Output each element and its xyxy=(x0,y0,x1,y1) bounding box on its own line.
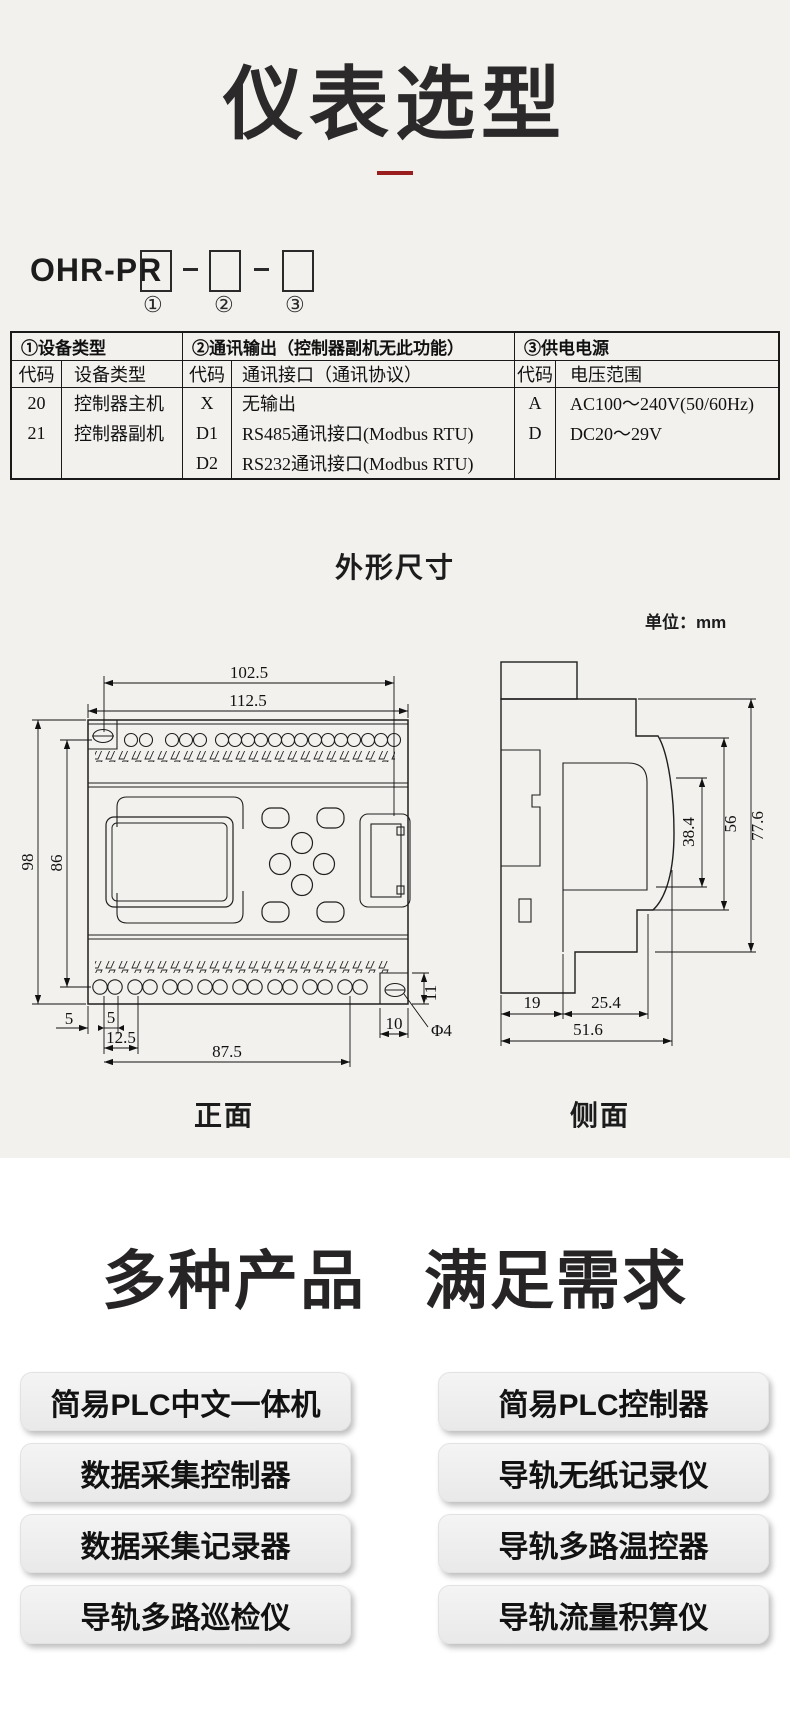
col-header-code-1: 代码 xyxy=(12,361,61,388)
product-button-rail-scanner[interactable]: 导轨多路巡检仪 xyxy=(20,1585,351,1644)
cell-no-output: 无输出 xyxy=(242,388,514,418)
col-header-comm-interface: 通讯接口（通讯协议） xyxy=(231,361,514,388)
section-header-device-type: ①设备类型 xyxy=(12,333,182,360)
cell-code-d2: D2 xyxy=(183,448,231,478)
cell-code-20: 20 xyxy=(12,388,61,418)
dim-front-hole-diameter: Φ4 xyxy=(431,1021,452,1040)
dim-front-height-full: 98 xyxy=(18,854,37,871)
top-gray-section: 仪表选型 OHR-PR ① ② ③ ①设备类型 ②通讯输出（控制器副机无此功能）… xyxy=(0,0,790,1158)
title-underline-dash xyxy=(377,171,413,175)
cell-code-d1: D1 xyxy=(183,418,231,448)
model-code-box-1 xyxy=(140,250,172,292)
dim-front-offset-pair: 12.5 xyxy=(106,1028,136,1047)
product-buttons-right-column: 简易PLC控制器 导轨无纸记录仪 导轨多路温控器 导轨流量积算仪 xyxy=(438,1372,769,1644)
model-code-dash-1 xyxy=(183,268,198,271)
product-button-data-acq-controller[interactable]: 数据采集控制器 xyxy=(20,1443,351,1502)
section-header-comm-output: ②通讯输出（控制器副机无此功能） xyxy=(182,333,514,360)
front-view-label: 正面 xyxy=(184,1094,264,1134)
cell-rs232: RS232通讯接口(Modbus RTU) xyxy=(242,448,514,478)
cell-code-x: X xyxy=(183,388,231,418)
model-position-3: ③ xyxy=(285,292,305,318)
model-position-2: ② xyxy=(214,292,234,318)
cell-voltage-ac: AC100～240V(50/60Hz) xyxy=(570,388,778,418)
cell-code-d: D xyxy=(515,418,555,448)
dim-side-depth-front: 38.4 xyxy=(679,817,698,847)
products-heading-part1: 多种产品 xyxy=(102,1245,366,1317)
product-button-paperless-recorder[interactable]: 导轨无纸记录仪 xyxy=(438,1443,769,1502)
table-body: 20 21 控制器主机 控制器副机 X D1 D2 无输出 RS485通讯接口(… xyxy=(12,388,778,478)
cell-rs485: RS485通讯接口(Modbus RTU) xyxy=(242,418,514,448)
model-code-box-3 xyxy=(282,250,314,292)
dim-front-width-top: 102.5 xyxy=(230,663,268,682)
model-code-dash-2 xyxy=(254,268,269,271)
products-heading-part2: 满足需求 xyxy=(424,1245,688,1317)
section-header-power-supply: ③供电电源 xyxy=(514,333,778,360)
col-header-code-2: 代码 xyxy=(182,361,231,388)
cell-device-master: 控制器主机 xyxy=(74,388,182,418)
col-header-code-3: 代码 xyxy=(514,361,555,388)
model-code-box-2 xyxy=(209,250,241,292)
product-button-data-acq-recorder[interactable]: 数据采集记录器 xyxy=(20,1514,351,1573)
cell-code-a: A xyxy=(515,388,555,418)
right-module xyxy=(360,814,410,907)
dim-side-depth-mid: 56 xyxy=(721,816,740,833)
product-buttons-left-column: 简易PLC中文一体机 数据采集控制器 数据采集记录器 导轨多路巡检仪 xyxy=(20,1372,351,1644)
dim-front-width-bottom: 87.5 xyxy=(212,1042,242,1061)
dim-front-offset-edge: 5 xyxy=(65,1009,74,1028)
dim-front-height-inner: 86 xyxy=(47,855,66,872)
side-view-label: 侧面 xyxy=(560,1094,640,1134)
top-terminal-holes xyxy=(125,734,401,747)
keypad-buttons xyxy=(262,808,344,922)
front-view-drawing xyxy=(88,720,410,1004)
lcd-screen xyxy=(106,817,233,907)
cell-voltage-dc: DC20～29V xyxy=(570,418,778,448)
bottom-terminal-holes xyxy=(93,980,367,994)
cell-device-slave: 控制器副机 xyxy=(74,418,182,448)
dim-front-offset-hole: 5 xyxy=(107,1008,116,1027)
model-selection-table: ①设备类型 ②通讯输出（控制器副机无此功能） ③供电电源 代码 设备类型 代码 … xyxy=(10,331,780,480)
dim-side-base-mid: 25.4 xyxy=(591,993,621,1012)
product-button-plc-allinone[interactable]: 简易PLC中文一体机 xyxy=(20,1372,351,1431)
dim-side-base-full: 51.6 xyxy=(573,1020,603,1039)
col-header-voltage-range: 电压范围 xyxy=(555,361,778,388)
products-heading: 多种产品满足需求 xyxy=(0,1230,790,1322)
dim-front-width-full: 112.5 xyxy=(229,691,267,710)
product-button-flow-totalizer[interactable]: 导轨流量积算仪 xyxy=(438,1585,769,1644)
dim-front-block-height: 11 xyxy=(421,985,440,1001)
dim-front-block-width: 10 xyxy=(386,1014,403,1033)
dim-side-base-left: 19 xyxy=(524,993,541,1012)
product-button-temp-controller[interactable]: 导轨多路温控器 xyxy=(438,1514,769,1573)
dim-side-depth-full: 77.6 xyxy=(748,811,767,841)
col-header-device-type: 设备类型 xyxy=(61,361,182,388)
page-title: 仪表选型 xyxy=(0,40,790,156)
dimension-drawing: 102.5 112.5 98 86 5 5 12.5 87.5 10 11 Φ4 xyxy=(0,540,790,1160)
table-column-header-row: 代码 设备类型 代码 通讯接口（通讯协议） 代码 电压范围 xyxy=(12,361,778,389)
cell-code-21: 21 xyxy=(12,418,61,448)
table-section-header-row: ①设备类型 ②通讯输出（控制器副机无此功能） ③供电电源 xyxy=(12,333,778,361)
model-position-1: ① xyxy=(143,292,163,318)
product-button-plc-controller[interactable]: 简易PLC控制器 xyxy=(438,1372,769,1431)
